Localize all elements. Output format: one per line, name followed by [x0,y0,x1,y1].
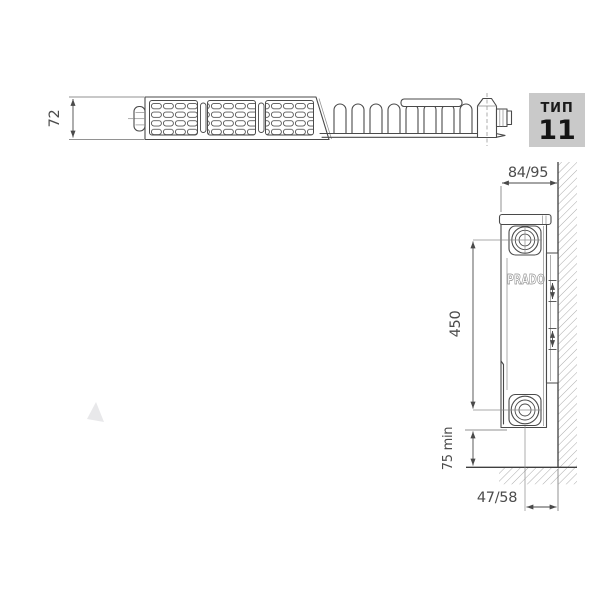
fin-cover-clip [401,99,462,107]
grille-panel [150,101,198,136]
end-plug [128,107,145,132]
brand-logo: PRADO [507,273,545,288]
side-view: 84/95 [441,162,577,511]
dim-wall-clearance-label: 84/95 [508,165,548,181]
top-view: 72 [47,93,512,146]
side-valve [478,93,512,146]
top-grille [150,101,314,136]
top-connection-port [509,226,541,255]
type-badge-label: ТИП [540,101,573,116]
dim-floor-clearance-label: 75 min [441,427,456,470]
drawing-canvas: 72 [0,0,600,600]
grille-panel [266,101,314,136]
dim-axis-spacing: 450 [448,242,473,409]
watermark-triangle [87,402,104,422]
floor-hatch [499,468,577,485]
type-badge: ТИП 11 [529,93,585,147]
dim-depth-label: 72 [47,110,63,128]
wall-hatch [558,162,577,468]
wall-bracket [547,253,559,383]
top-grille-cap [500,215,552,225]
convector-fins [334,99,472,134]
dim-wall-clearance: 84/95 [501,165,557,212]
radiator-technical-drawing: 72 [0,0,600,600]
dim-pipe-to-wall-label: 47/58 [477,490,517,506]
dim-floor-clearance: 75 min [441,427,507,470]
type-badge-number: 11 [538,115,576,146]
dim-depth: 72 [47,97,144,140]
dim-axis-spacing-label: 450 [448,311,464,338]
valve-nipple [497,109,508,127]
grille-panel [208,101,256,136]
